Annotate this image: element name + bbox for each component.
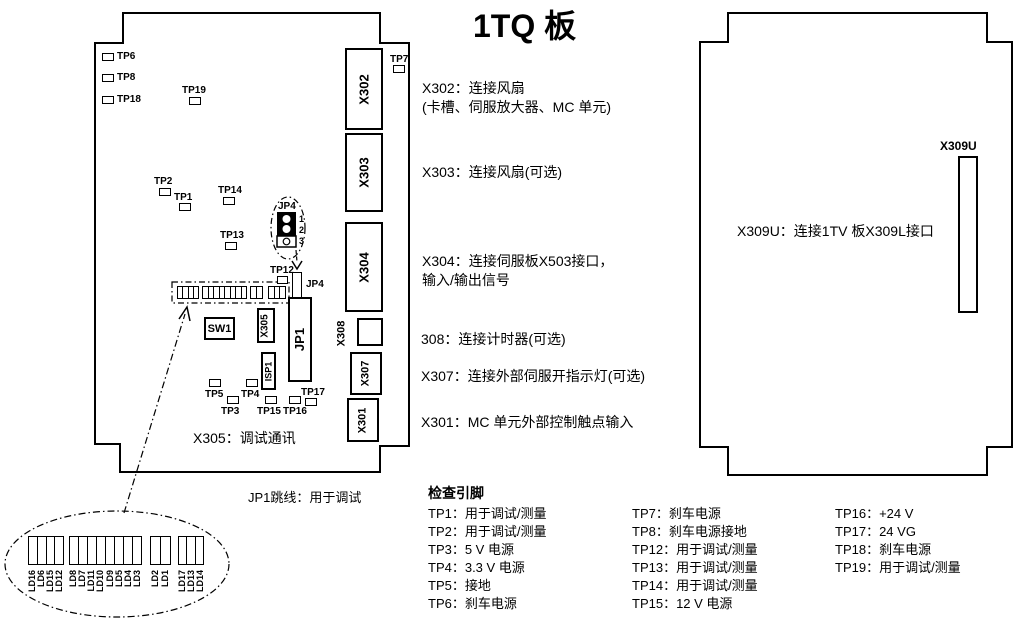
led-cell (256, 287, 262, 298)
led-cell (123, 537, 132, 564)
connector-x304-label: X304 (358, 252, 371, 282)
led-cell (179, 537, 186, 564)
tp7-label: TP7 (390, 55, 408, 65)
connector-x307: X307 (350, 352, 382, 395)
jp4-callout-title: JP4 (278, 202, 296, 212)
tp3-label: TP3 (221, 407, 239, 417)
check-pin-item: TP18：刹车电源 (835, 541, 961, 559)
tp8-pad (102, 74, 114, 82)
led-zoom-labels-1: LD16 LD6 LD15 LD12 (28, 570, 64, 604)
jp4-pin2-dot (283, 225, 291, 233)
led-label: LD14 (196, 570, 205, 592)
jumper-jp1-label: JP1 (294, 328, 307, 351)
connector-x308 (357, 318, 383, 346)
tp7-pad (393, 65, 405, 73)
check-pin-item: TP4：3.3 V 电源 (428, 559, 546, 577)
led-cell (195, 537, 203, 564)
led-zoom-labels-4: LD17 LD13 LD14 (178, 570, 204, 604)
led-cell (132, 537, 141, 564)
tp16-label: TP16 (283, 407, 307, 417)
tp15-label: TP15 (257, 407, 281, 417)
jumper-jp4 (292, 272, 302, 298)
tp6-label: TP6 (117, 52, 135, 62)
tp5-pad (209, 379, 221, 387)
annotation-x302-line1: X302：连接风扇 (422, 79, 611, 98)
tp13-pad (225, 242, 237, 250)
led-cell (78, 537, 87, 564)
led-cell (70, 537, 78, 564)
tp19-pad (189, 97, 201, 105)
led-cell (87, 537, 96, 564)
check-pin-item: TP19：用于调试/测量 (835, 559, 961, 577)
led-cell (241, 287, 247, 298)
check-pin-item: TP8：刹车电源接地 (632, 523, 758, 541)
check-pin-item: TP13：用于调试/测量 (632, 559, 758, 577)
annotation-x308: 308：连接计时器(可选) (421, 330, 566, 349)
tp2-pad (159, 188, 171, 196)
annotation-x301: X301：MC 单元外部控制触点输入 (421, 413, 633, 432)
connector-x309u-label: X309U (940, 140, 977, 152)
tp13-label: TP13 (220, 231, 244, 241)
page-title: 1TQ 板 (473, 1, 576, 47)
connector-x308-label-box: X308 (330, 314, 354, 352)
led-cell (46, 537, 55, 564)
led-bank-3 (250, 286, 263, 299)
check-pins-col2: TP7：刹车电源 TP8：刹车电源接地 TP12：用于调试/测量 TP13：用于… (632, 505, 758, 613)
tp4-label: TP4 (241, 390, 259, 400)
switch-sw1: SW1 (204, 317, 235, 340)
led-cell (186, 537, 194, 564)
led-cell (54, 537, 63, 564)
led-cell (193, 287, 198, 298)
led-label: LD2 (151, 570, 160, 587)
check-pin-item: TP2：用于调试/测量 (428, 523, 546, 541)
annotation-x304: X304：连接伺服板X503接口， 输入/输出信号 (422, 252, 613, 290)
check-pins-col1: TP1：用于调试/测量 TP2：用于调试/测量 TP3：5 V 电源 TP4：3… (428, 505, 546, 613)
led-cell (160, 537, 170, 564)
check-pin-item: TP3：5 V 电源 (428, 541, 546, 559)
led-cell (96, 537, 105, 564)
check-pin-item: TP15：12 V 电源 (632, 595, 758, 613)
connector-isp1: ISP1 (261, 352, 276, 390)
tp18-label: TP18 (117, 95, 141, 105)
tp1-label: TP1 (174, 193, 192, 203)
connector-x305-label: X305 (261, 314, 271, 337)
tp19-label: TP19 (182, 86, 206, 96)
tp17-label: TP17 (301, 388, 325, 398)
led-zoom-labels-3: LD2 LD1 (150, 570, 171, 604)
connector-x303-label: X303 (358, 157, 371, 187)
tp3-pad (227, 396, 239, 404)
annotation-x302-line2: (卡槽、伺服放大器、MC 单元) (422, 98, 611, 117)
tp5-label: TP5 (205, 390, 223, 400)
annotation-x303: X303：连接风扇(可选) (422, 163, 562, 182)
check-pin-item: TP1：用于调试/测量 (428, 505, 546, 523)
jp4-pin1-label: 1 (299, 215, 304, 224)
connector-x307-label: X307 (360, 361, 371, 387)
switch-sw1-label: SW1 (208, 323, 232, 335)
connector-x302-label: X302 (358, 74, 371, 104)
annotation-x307: X307：连接外部伺服开指示灯(可选) (421, 367, 645, 386)
jp4-pin1-dot (283, 215, 291, 223)
check-pin-item: TP5：接地 (428, 577, 546, 595)
connector-x305: X305 (257, 308, 275, 343)
check-pins-heading: 检查引脚 (428, 483, 484, 503)
led-label: LD1 (161, 570, 170, 587)
tp12-pad (277, 276, 288, 284)
tp2-label: TP2 (154, 177, 172, 187)
led-label: LD3 (133, 570, 142, 587)
led-cell (105, 537, 114, 564)
check-pins-col3: TP16：+24 V TP17：24 VG TP18：刹车电源 TP19：用于调… (835, 505, 961, 577)
jumper-jp1: JP1 (288, 297, 312, 382)
connector-isp1-label: ISP1 (264, 361, 273, 381)
connector-x301-label: X301 (357, 407, 368, 433)
check-pin-item: TP6：刹车电源 (428, 595, 546, 613)
led-cell (151, 537, 160, 564)
check-pin-item: TP14：用于调试/测量 (632, 577, 758, 595)
led-bank-1 (177, 286, 199, 299)
tp15-pad (265, 396, 277, 404)
annotation-x304-line2: 输入/输出信号 (422, 271, 613, 290)
led-zoom-labels-2: LD8 LD7 LD11 LD10 LD9 LD5 LD4 LD3 (69, 570, 142, 604)
x309u-note: X309U：连接1TV 板X309L接口 (737, 221, 934, 241)
check-pin-item: TP12：用于调试/测量 (632, 541, 758, 559)
x305-note: X305：调试通讯 (193, 428, 296, 448)
connector-x304: X304 (345, 222, 383, 312)
tp18-pad (102, 96, 114, 104)
connector-x303: X303 (345, 133, 383, 212)
led-zoom-bank-3 (150, 536, 171, 565)
connector-x308-label: X308 (337, 320, 348, 346)
annotation-x304-line1: X304：连接伺服板X503接口， (422, 252, 613, 271)
tp16-pad (289, 396, 301, 404)
led-cell (37, 537, 46, 564)
jp4-pin3-label: 3 (299, 237, 304, 246)
jp4-pin3-dot (283, 238, 290, 245)
jp4-pin2-label: 2 (299, 226, 304, 235)
tp14-label: TP14 (218, 186, 242, 196)
tp1-pad (179, 203, 191, 211)
jumper-jp4-label: JP4 (306, 280, 324, 290)
connector-x309u (958, 156, 978, 313)
check-pin-item: TP7：刹车电源 (632, 505, 758, 523)
tp4-pad (246, 379, 258, 387)
tp14-pad (223, 197, 235, 205)
annotation-x302: X302：连接风扇 (卡槽、伺服放大器、MC 单元) (422, 79, 611, 117)
connector-x301: X301 (347, 398, 379, 442)
check-pin-item: TP17：24 VG (835, 523, 961, 541)
led-zoom-bank-4 (178, 536, 204, 565)
jp1-note: JP1跳线：用于调试 (248, 487, 361, 506)
led-zoom-bank-2 (69, 536, 142, 565)
tp8-label: TP8 (117, 73, 135, 83)
tp17-pad (305, 398, 317, 406)
connector-x302: X302 (345, 48, 383, 130)
led-bank-2 (202, 286, 247, 299)
led-zoom-bank-1 (28, 536, 64, 565)
led-cell (114, 537, 123, 564)
led-bank-4 (268, 286, 286, 299)
board-diagram: 1TQ 板 TP6 TP8 TP18 TP19 TP2 TP1 TP14 TP1… (0, 0, 1025, 626)
tp12-label: TP12 (270, 266, 294, 276)
check-pin-item: TP16：+24 V (835, 505, 961, 523)
led-label: LD12 (55, 570, 64, 592)
led-cell (279, 287, 285, 298)
led-cell (29, 537, 37, 564)
tp6-pad (102, 53, 114, 61)
